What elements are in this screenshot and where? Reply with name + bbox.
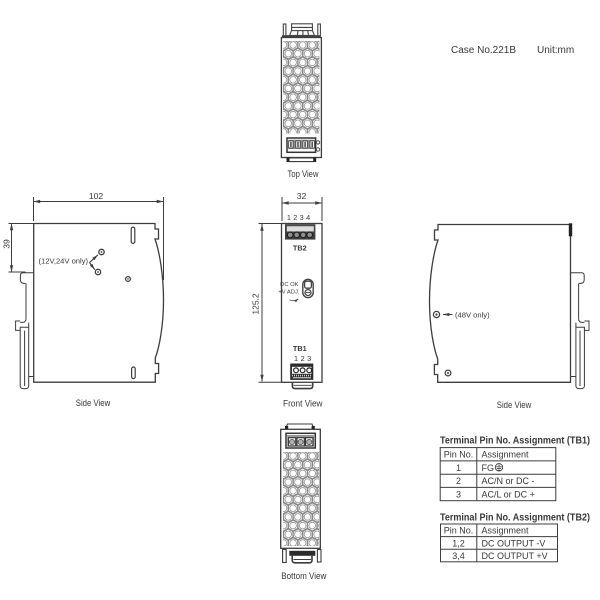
svg-text:(12V,24V only): (12V,24V only) — [39, 257, 89, 266]
svg-text:32: 32 — [297, 191, 307, 201]
svg-text:2: 2 — [301, 354, 305, 363]
svg-text:+V ADJ.: +V ADJ. — [278, 290, 299, 296]
svg-text:3: 3 — [300, 213, 304, 222]
svg-text:AC/N or DC -: AC/N or DC - — [482, 476, 535, 486]
svg-text:DC OUTPUT +V: DC OUTPUT +V — [482, 551, 548, 561]
svg-text:Terminal Pin No. Assignment (T: Terminal Pin No. Assignment (TB2) — [440, 512, 590, 524]
svg-text:Side View: Side View — [76, 398, 111, 409]
svg-text:Front View: Front View — [283, 399, 323, 410]
svg-text:FG: FG — [482, 463, 495, 473]
svg-text:Case No.221B: Case No.221B — [451, 45, 516, 56]
svg-text:Side View: Side View — [497, 400, 532, 411]
svg-text:1: 1 — [287, 213, 291, 222]
svg-text:DC OUTPUT -V: DC OUTPUT -V — [482, 538, 546, 548]
svg-text:Assignment: Assignment — [482, 450, 530, 460]
svg-text:4: 4 — [306, 213, 310, 222]
svg-text:2: 2 — [293, 213, 297, 222]
svg-text:Assignment: Assignment — [482, 526, 530, 536]
svg-text:TB2: TB2 — [293, 244, 307, 253]
svg-text:102: 102 — [89, 191, 104, 201]
svg-text:(48V only): (48V only) — [455, 311, 490, 320]
svg-text:Terminal Pin No. Assignment (T: Terminal Pin No. Assignment (TB1) — [440, 435, 590, 447]
svg-text:1: 1 — [294, 354, 298, 363]
svg-text:39: 39 — [2, 239, 12, 249]
svg-text:1,2: 1,2 — [452, 538, 465, 548]
svg-text:1: 1 — [456, 463, 461, 473]
svg-text:2: 2 — [456, 476, 461, 486]
svg-text:Pin No.: Pin No. — [444, 450, 474, 460]
svg-text:3,4: 3,4 — [452, 551, 465, 561]
svg-text:Pin No.: Pin No. — [444, 526, 474, 536]
svg-text:125.2: 125.2 — [251, 293, 261, 315]
svg-text:DC OK: DC OK — [280, 282, 298, 288]
svg-text:Top View: Top View — [288, 169, 319, 180]
svg-text:Unit:mm: Unit:mm — [537, 45, 574, 56]
svg-text:AC/L or DC +: AC/L or DC + — [482, 489, 535, 499]
svg-text:3: 3 — [307, 354, 311, 363]
svg-text:3: 3 — [456, 489, 461, 499]
svg-text:Bottom View: Bottom View — [281, 571, 326, 582]
svg-text:TB1: TB1 — [293, 344, 307, 353]
